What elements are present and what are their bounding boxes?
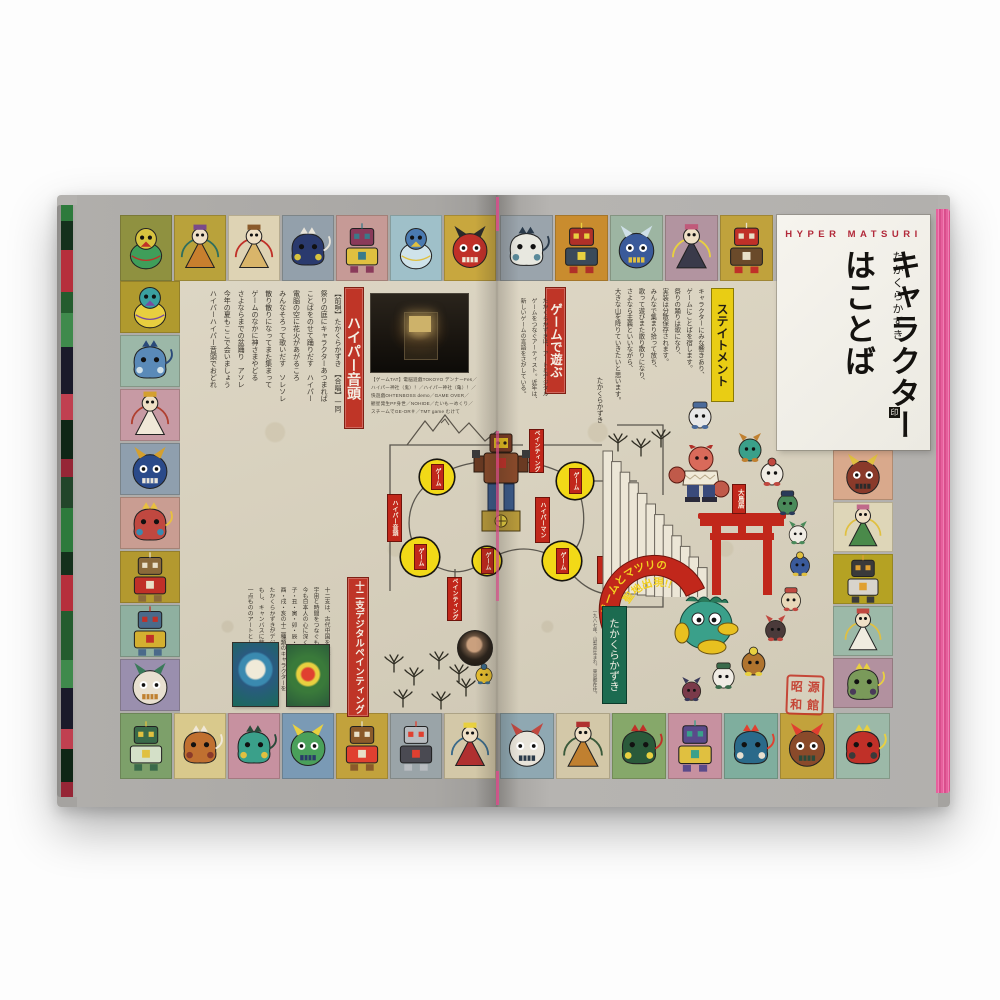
pine-tree-sketch (403, 666, 425, 686)
page-stack-fore-edge-right (936, 209, 950, 793)
pine-tree-sketch (650, 428, 672, 448)
pine-tree-sketch (630, 437, 652, 457)
magazine-spread: ハイパー音頭 【ゲームTAT】電脳遊戯TOKOYO デンナーFes／ハイパー神社… (57, 195, 950, 807)
pine-tree-sketch (383, 653, 405, 673)
gutter-pink-edge-middle (496, 431, 499, 601)
gutter-pink-edge-top (496, 197, 499, 231)
pine-tree-sketch (430, 690, 452, 710)
pine-tree-sketch (428, 650, 450, 670)
pine-tree-sketch (392, 688, 414, 708)
pine-tree-sketch (607, 432, 629, 452)
pine-tree-sketch (455, 677, 477, 697)
gutter-pink-edge-bottom (496, 771, 499, 805)
photo-background: ハイパー音頭 【ゲームTAT】電脳遊戯TOKOYO デンナーFes／ハイパー神社… (0, 0, 1000, 1000)
